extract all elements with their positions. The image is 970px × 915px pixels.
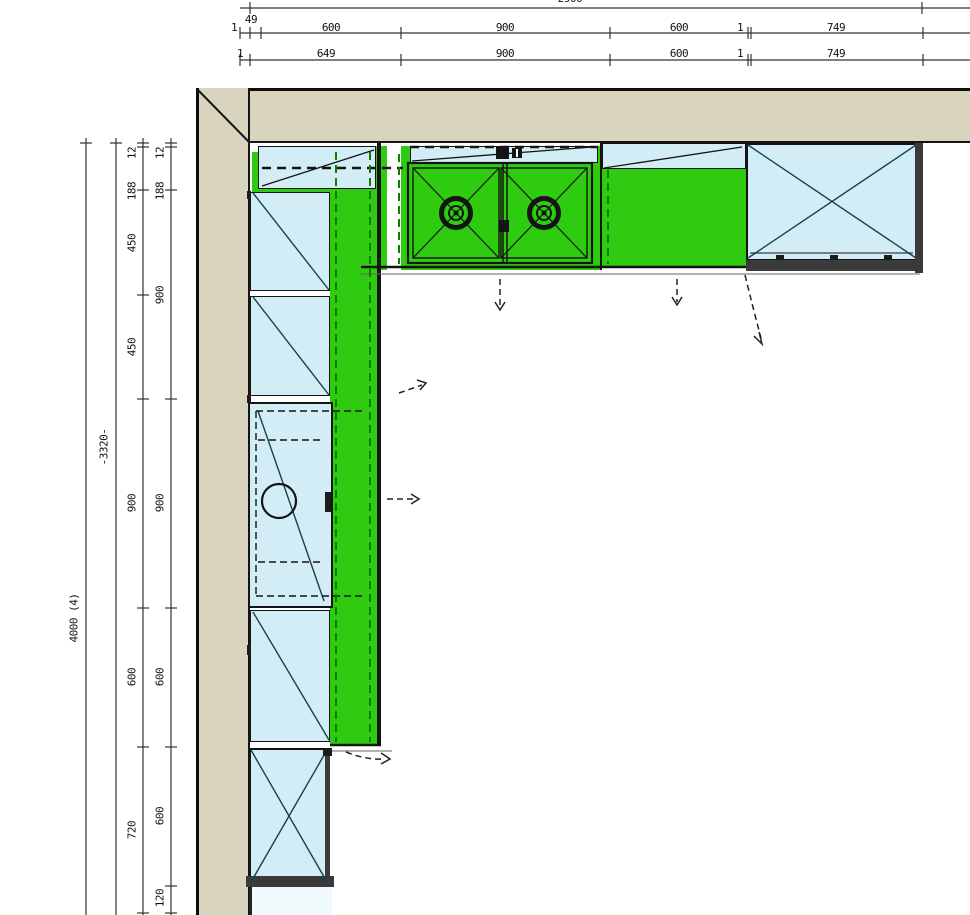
dim-label: 450 — [126, 234, 139, 252]
dim-label: 900 — [154, 494, 167, 512]
dim-label: 600 — [154, 807, 167, 825]
dim-label: 900 — [496, 47, 514, 60]
sink-circle-icon — [262, 484, 296, 518]
dim-label: 900 — [496, 21, 514, 34]
plan-linework — [0, 0, 970, 915]
door-swing-arrow — [399, 385, 422, 393]
dim-label: 600 — [322, 21, 340, 34]
sink — [256, 411, 366, 596]
wall-miter-line — [197, 89, 249, 142]
dim-label: 749 — [827, 47, 845, 60]
dim-label: 12 — [126, 147, 139, 159]
cabinet-door-diagonals — [251, 145, 916, 882]
dim-label: 12 — [154, 147, 167, 159]
dim-label: 649 — [317, 47, 335, 60]
dim-label: 1 — [237, 47, 243, 60]
dim-label: 1 — [737, 47, 743, 60]
dim-label: 720 — [126, 821, 139, 839]
door-swing-arrows — [346, 275, 762, 764]
dim-label: 188 — [126, 182, 139, 200]
dim-label: 120 — [154, 889, 167, 907]
dim-label: 600 — [670, 47, 688, 60]
gas-valve-icon — [496, 147, 509, 159]
door-swing-arrow — [346, 752, 384, 759]
fittings — [247, 191, 892, 756]
counter-dashed-lines — [336, 152, 608, 742]
dim-label: 1 — [737, 21, 743, 34]
dim-total-top: 2900 — [558, 0, 583, 5]
dimension-lines-top — [240, 2, 970, 66]
dim-label: 749 — [827, 21, 845, 34]
door-swing-arrow — [745, 275, 761, 338]
dim-label: 600 — [670, 21, 688, 34]
cooktop — [408, 147, 592, 263]
dim-overall-left: 4000 (4) — [68, 594, 81, 643]
dim-label: 188 — [154, 182, 167, 200]
dim-label: 900 — [126, 494, 139, 512]
floor-plan-canvas: 2900 1 49 600 900 600 1 749 1 649 900 60… — [0, 0, 970, 915]
dim-chain-left: -3320- — [98, 429, 111, 466]
dim-label: 1 — [231, 21, 237, 34]
dim-label: 49 — [245, 13, 257, 26]
dim-label: 900 — [154, 286, 167, 304]
dimension-lines-left — [80, 138, 177, 915]
dim-label: 600 — [126, 668, 139, 686]
dim-label: 600 — [154, 668, 167, 686]
dim-label: 450 — [126, 338, 139, 356]
